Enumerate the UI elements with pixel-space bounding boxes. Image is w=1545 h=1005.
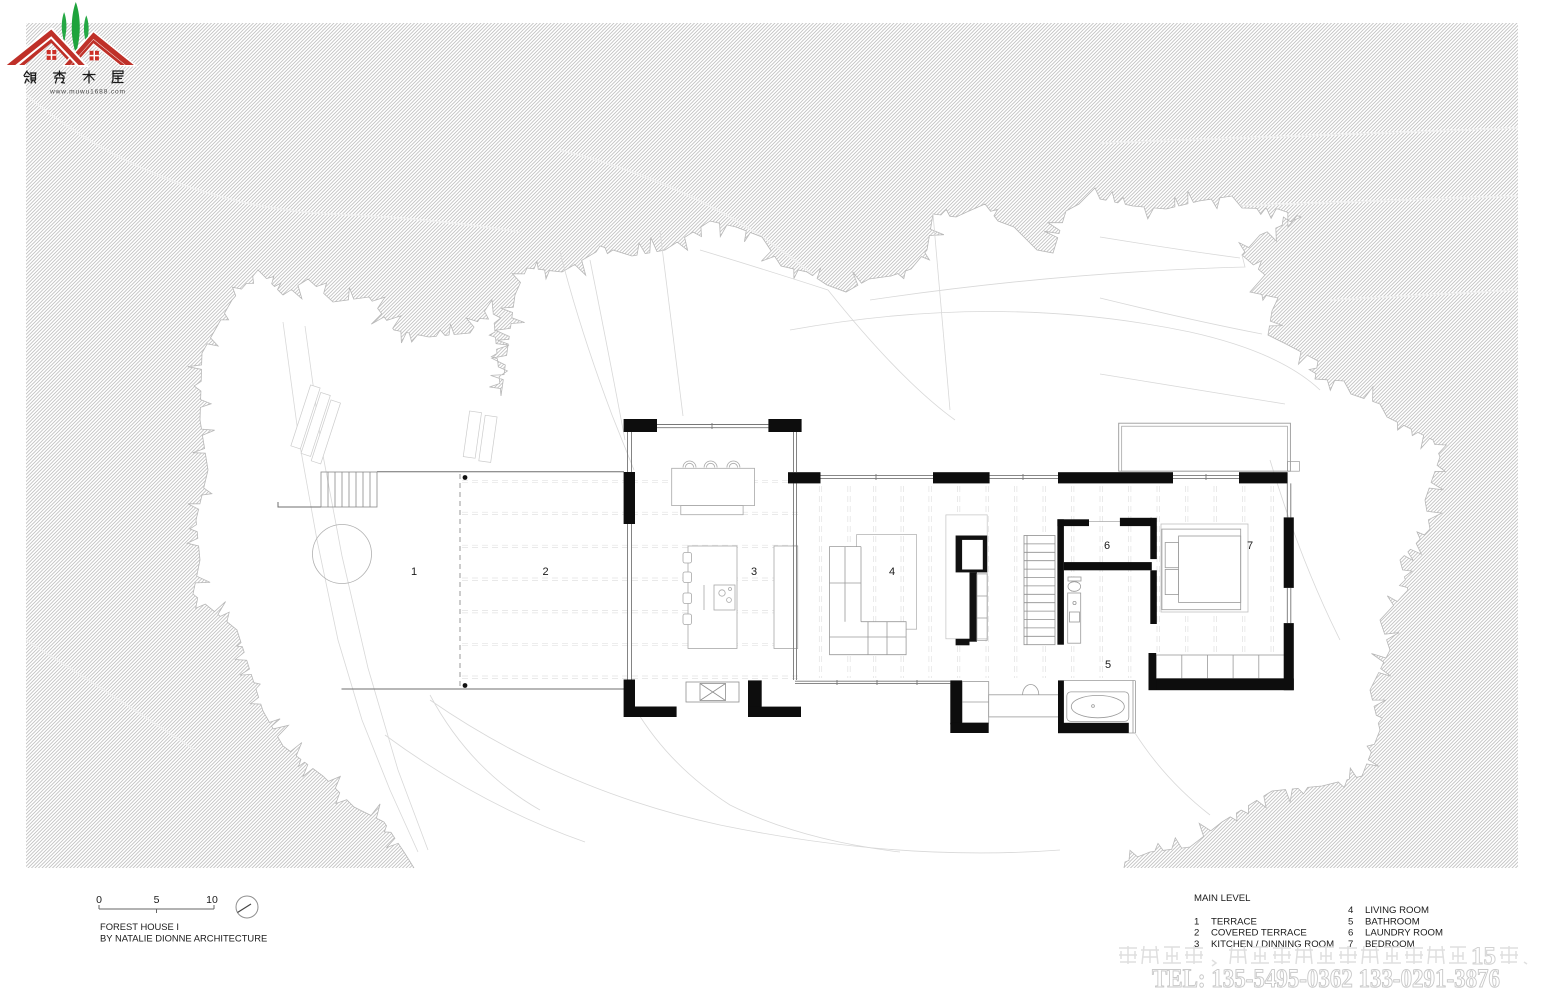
svg-text:3: 3 (751, 566, 757, 578)
svg-text:TEL: 135-5495-0362 133-0291-38: TEL: 135-5495-0362 133-0291-3876 (1152, 964, 1500, 993)
svg-text:1: 1 (1194, 916, 1199, 927)
svg-text:2: 2 (1194, 928, 1199, 939)
svg-text:MAIN LEVEL: MAIN LEVEL (1194, 893, 1251, 904)
svg-text:5: 5 (1348, 916, 1353, 927)
svg-text:LIVING ROOM: LIVING ROOM (1365, 905, 1429, 916)
svg-text:1: 1 (411, 566, 417, 578)
svg-text:LAUNDRY ROOM: LAUNDRY ROOM (1365, 928, 1443, 939)
svg-text:www.muwu1688.com: www.muwu1688.com (49, 89, 126, 96)
svg-text:TERRACE: TERRACE (1211, 916, 1257, 927)
svg-text:COVERED TERRACE: COVERED TERRACE (1211, 928, 1307, 939)
svg-text:4: 4 (889, 566, 895, 578)
svg-text:5: 5 (154, 894, 160, 906)
svg-text:6: 6 (1348, 928, 1353, 939)
svg-text:5: 5 (1105, 659, 1111, 671)
svg-text:BATHROOM: BATHROOM (1365, 916, 1420, 927)
svg-text:FOREST HOUSE I: FOREST HOUSE I (100, 921, 179, 932)
svg-text:4: 4 (1348, 905, 1354, 916)
svg-text:BY NATALIE DIONNE ARCHITECTURE: BY NATALIE DIONNE ARCHITECTURE (100, 933, 267, 944)
svg-text:10: 10 (206, 894, 218, 906)
svg-text:KITCHEN / DINNING ROOM: KITCHEN / DINNING ROOM (1211, 939, 1334, 950)
svg-text:6: 6 (1104, 540, 1110, 552)
svg-text:7: 7 (1247, 540, 1253, 552)
svg-text:2: 2 (543, 566, 549, 578)
svg-text:0: 0 (96, 894, 102, 906)
